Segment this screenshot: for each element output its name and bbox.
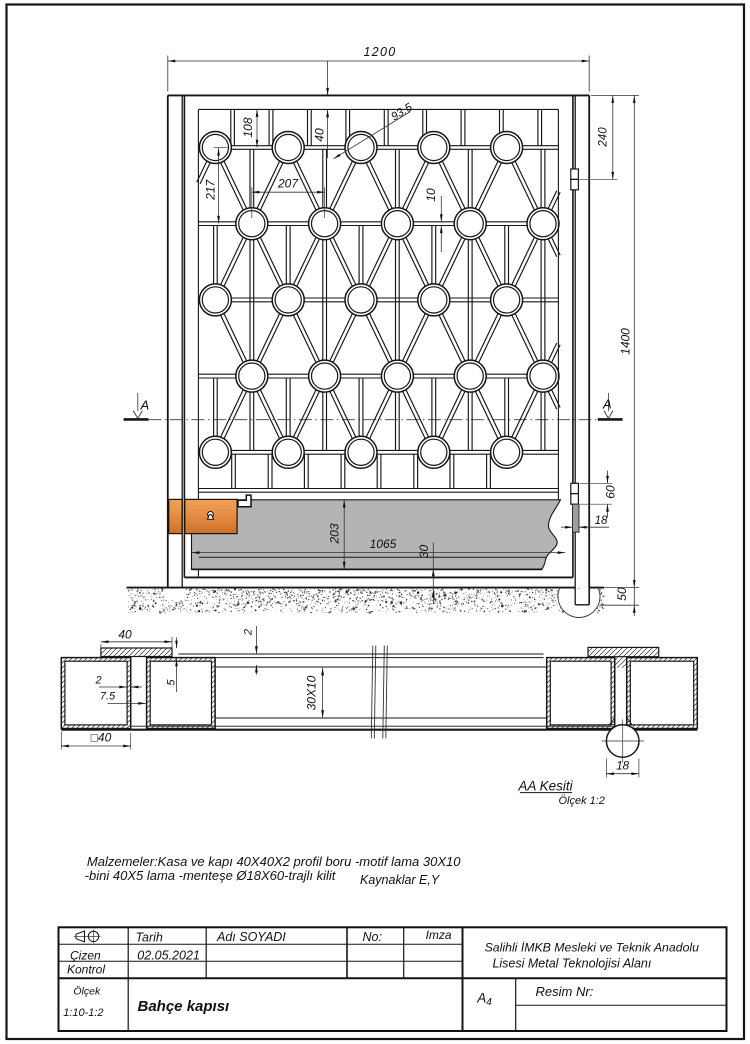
svg-text:1200: 1200 — [363, 45, 396, 59]
svg-text:02.05.2021: 02.05.2021 — [137, 949, 200, 963]
svg-text:Salihli İMKB Mesleki ve Teknik: Salihli İMKB Mesleki ve Teknik Anadolu — [485, 940, 700, 954]
svg-text:2: 2 — [94, 675, 101, 687]
svg-text:50: 50 — [615, 587, 629, 601]
svg-text:7.5: 7.5 — [100, 691, 116, 703]
svg-text:A: A — [140, 398, 150, 413]
svg-text:Çizen: Çizen — [70, 948, 101, 962]
svg-text:Ölçek 1:2: Ölçek 1:2 — [558, 795, 604, 807]
svg-text:18: 18 — [595, 515, 608, 527]
svg-text:Malzemeler:Kasa ve kapı 40X40X: Malzemeler:Kasa ve kapı 40X40X2 profil b… — [87, 854, 461, 869]
svg-text:2: 2 — [243, 629, 255, 636]
svg-text:1:10-1:2: 1:10-1:2 — [63, 1007, 103, 1019]
svg-text:AA Kesiti: AA Kesiti — [517, 779, 573, 794]
svg-text:Ölçek: Ölçek — [73, 986, 101, 998]
svg-text:No:: No: — [363, 930, 382, 944]
svg-text:207: 207 — [277, 177, 299, 191]
svg-text:60: 60 — [604, 485, 618, 499]
svg-text:30X10: 30X10 — [304, 675, 318, 710]
svg-text:1400: 1400 — [619, 328, 633, 355]
svg-text:Bahçe kapısı: Bahçe kapısı — [138, 998, 230, 1015]
svg-text:A: A — [602, 397, 612, 412]
svg-text:Tarih: Tarih — [136, 930, 163, 944]
svg-text:217: 217 — [204, 178, 218, 200]
svg-text:Kontrol: Kontrol — [67, 963, 105, 977]
svg-text:40: 40 — [313, 128, 327, 142]
svg-text:4: 4 — [486, 997, 492, 1008]
svg-text:Adı SOYADI: Adı SOYADI — [216, 930, 286, 944]
svg-text:Lisesi Metal Teknolojisi Alanı: Lisesi Metal Teknolojisi Alanı — [492, 956, 651, 970]
svg-text:1065: 1065 — [370, 537, 397, 551]
svg-text:108: 108 — [241, 117, 255, 137]
svg-text:Imza: Imza — [426, 928, 452, 942]
svg-text:240: 240 — [598, 127, 610, 148]
svg-text:-bini 40X5 lama -menteşe Ø18X6: -bini 40X5 lama -menteşe Ø18X60-trajlı k… — [85, 868, 337, 883]
svg-text:203: 203 — [328, 523, 342, 544]
svg-text:A: A — [476, 991, 486, 1006]
svg-text:18: 18 — [616, 761, 629, 773]
svg-text:Resim Nr:: Resim Nr: — [536, 984, 594, 999]
svg-text:30: 30 — [417, 545, 431, 559]
svg-text:40: 40 — [118, 628, 132, 642]
svg-text:10: 10 — [424, 188, 438, 202]
svg-text:5: 5 — [166, 679, 178, 686]
svg-text:Kaynaklar E,Y: Kaynaklar E,Y — [360, 873, 441, 887]
svg-text:□40: □40 — [91, 731, 112, 745]
